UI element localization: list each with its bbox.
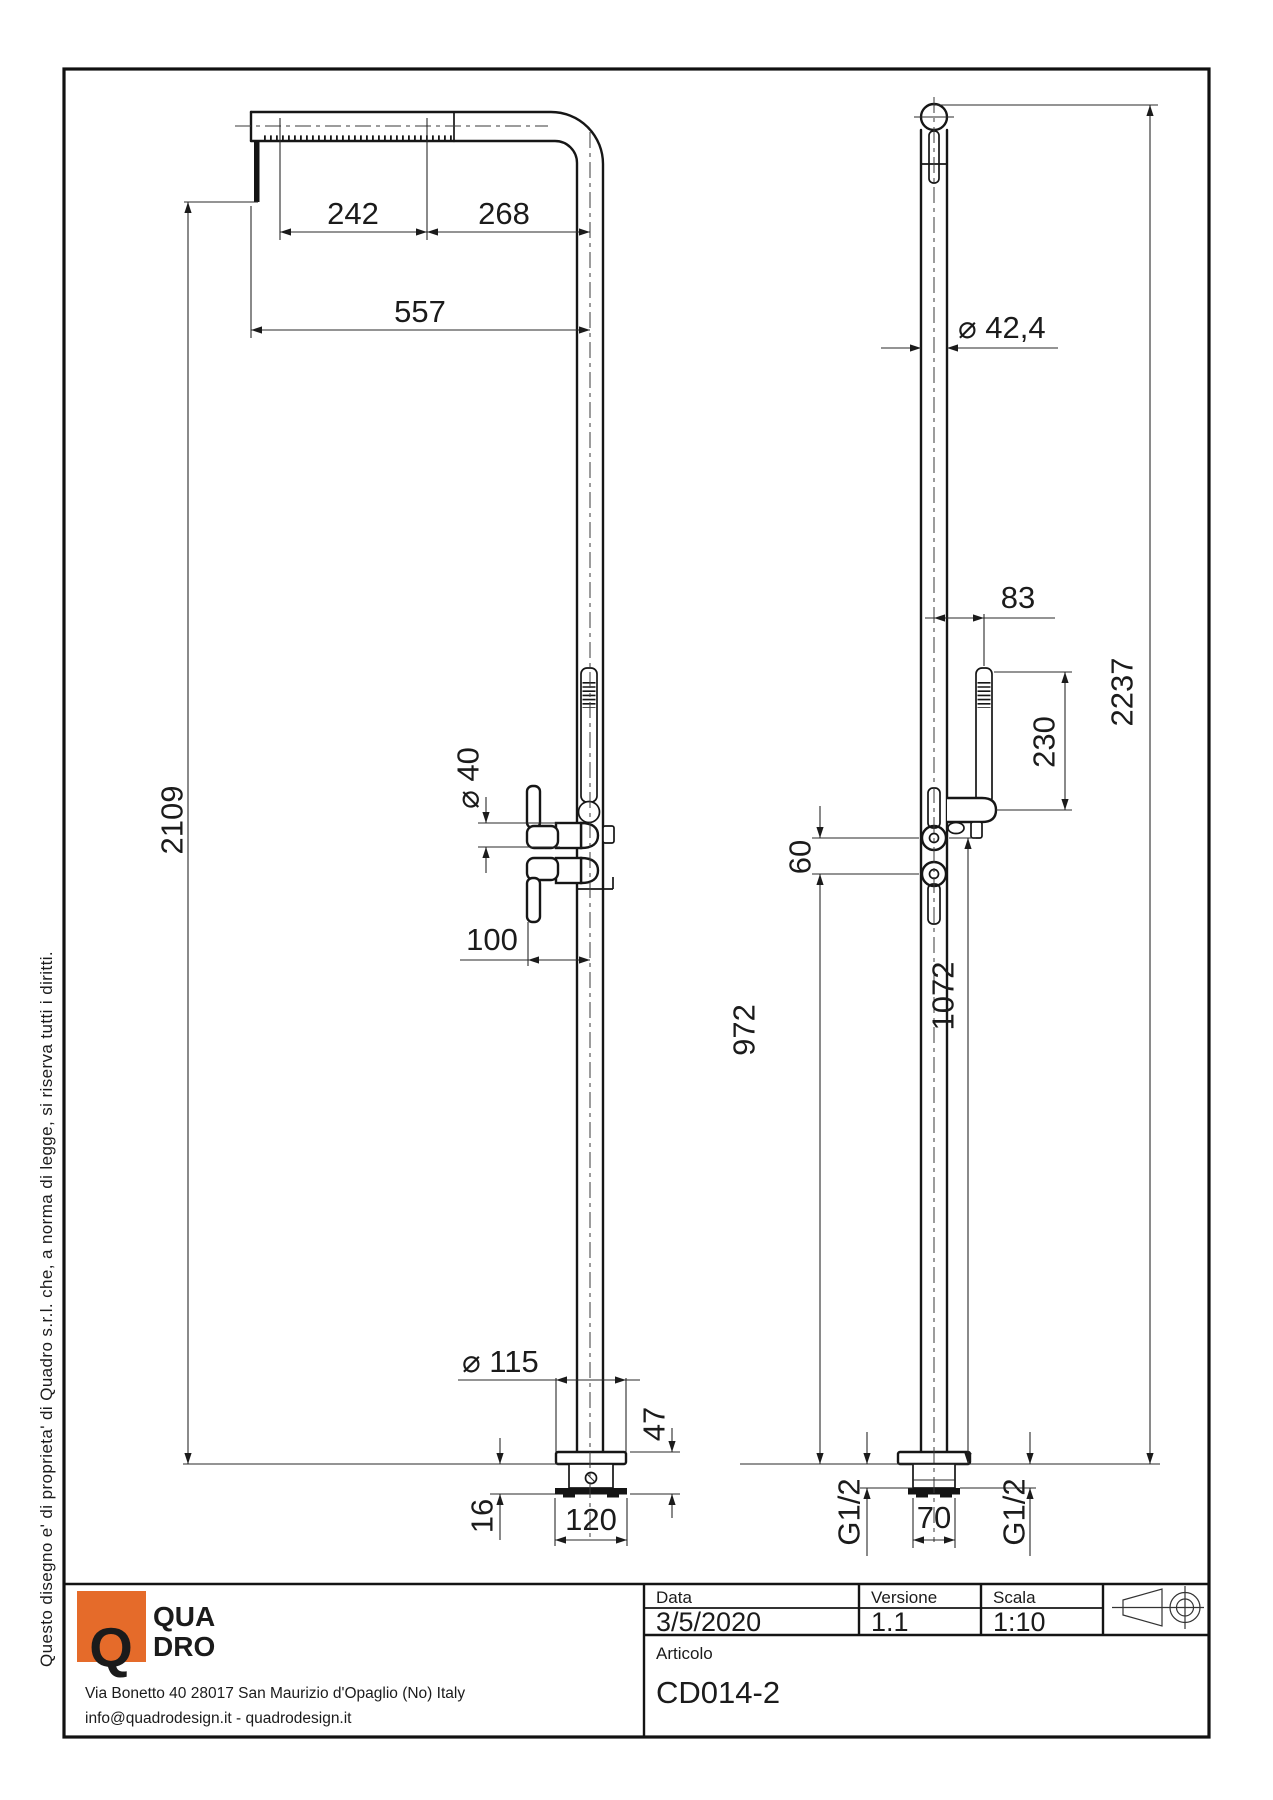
lower-valve-body: [556, 858, 581, 883]
lower-lever-grip: [527, 878, 540, 922]
dim-47: 47: [637, 1407, 672, 1441]
dim-2109: 2109: [155, 786, 190, 855]
diverter-tab: [603, 826, 614, 843]
articolo-label: Articolo: [656, 1644, 713, 1663]
dim-557: 557: [394, 294, 446, 329]
articolo-value: CD014-2: [656, 1675, 780, 1710]
dim-2237: 2237: [1105, 658, 1140, 727]
logo-line1: QUA: [153, 1601, 215, 1632]
drawing-sheet: 242 268 557 2109 ⌀ 40 100 ⌀ 115 16 47 12…: [0, 0, 1273, 1800]
escutcheon-front: [556, 1452, 626, 1464]
dim-83: 83: [1001, 580, 1035, 615]
scala-label: Scala: [993, 1588, 1036, 1607]
holder-pivot-front: [579, 802, 600, 823]
dim-972: 972: [727, 1004, 762, 1056]
handshower-side: [976, 668, 992, 804]
dim-16: 16: [465, 1499, 500, 1533]
dim-60: 60: [783, 840, 818, 874]
address-line1: Via Bonetto 40 28017 San Maurizio d'Opag…: [85, 1685, 465, 1702]
logo-line2: DRO: [153, 1631, 215, 1662]
data-value: 3/5/2020: [656, 1607, 761, 1637]
flange-nub: [563, 1495, 575, 1498]
thread-g12-right: G1/2: [997, 1478, 1032, 1545]
handshower-front: [581, 668, 597, 802]
flange-nub: [916, 1495, 928, 1498]
dim-dia42-4: ⌀ 42,4: [958, 310, 1046, 345]
dim-dia115: ⌀ 115: [462, 1344, 539, 1379]
flange-nub: [940, 1495, 952, 1498]
hose-connector-side: [971, 822, 982, 838]
upper-lever-grip: [527, 786, 540, 828]
dim-100: 100: [466, 922, 518, 957]
dim-70: 70: [917, 1500, 951, 1535]
logo-q: Q: [89, 1616, 133, 1679]
scala-value: 1:10: [993, 1607, 1046, 1637]
technical-drawing: 242 268 557 2109 ⌀ 40 100 ⌀ 115 16 47 12…: [0, 0, 1273, 1800]
versione-value: 1.1: [871, 1607, 909, 1637]
holder-arm-side: [947, 798, 996, 822]
upper-valve-body: [556, 823, 581, 848]
dim-268: 268: [478, 196, 530, 231]
copyright-note: Questo disegno e' di proprieta' di Quadr…: [37, 951, 56, 1667]
lower-lever-arm: [527, 858, 558, 880]
thread-g12-left: G1/2: [832, 1478, 867, 1545]
floor-flange-front: [555, 1488, 627, 1495]
dim-1072: 1072: [926, 962, 961, 1031]
dim-120: 120: [565, 1502, 617, 1537]
address-line2: info@quadrodesign.it - quadrodesign.it: [85, 1710, 352, 1727]
head-lip: [254, 141, 260, 202]
data-label: Data: [656, 1588, 692, 1607]
holder-knob-side: [948, 823, 964, 834]
upper-lever-arm: [527, 826, 558, 848]
dim-242: 242: [327, 196, 379, 231]
base-cylinder-front: [569, 1464, 613, 1488]
versione-label: Versione: [871, 1588, 937, 1607]
dim-dia40: ⌀ 40: [451, 747, 486, 809]
flange-nub: [607, 1495, 619, 1498]
dim-230: 230: [1027, 716, 1062, 768]
